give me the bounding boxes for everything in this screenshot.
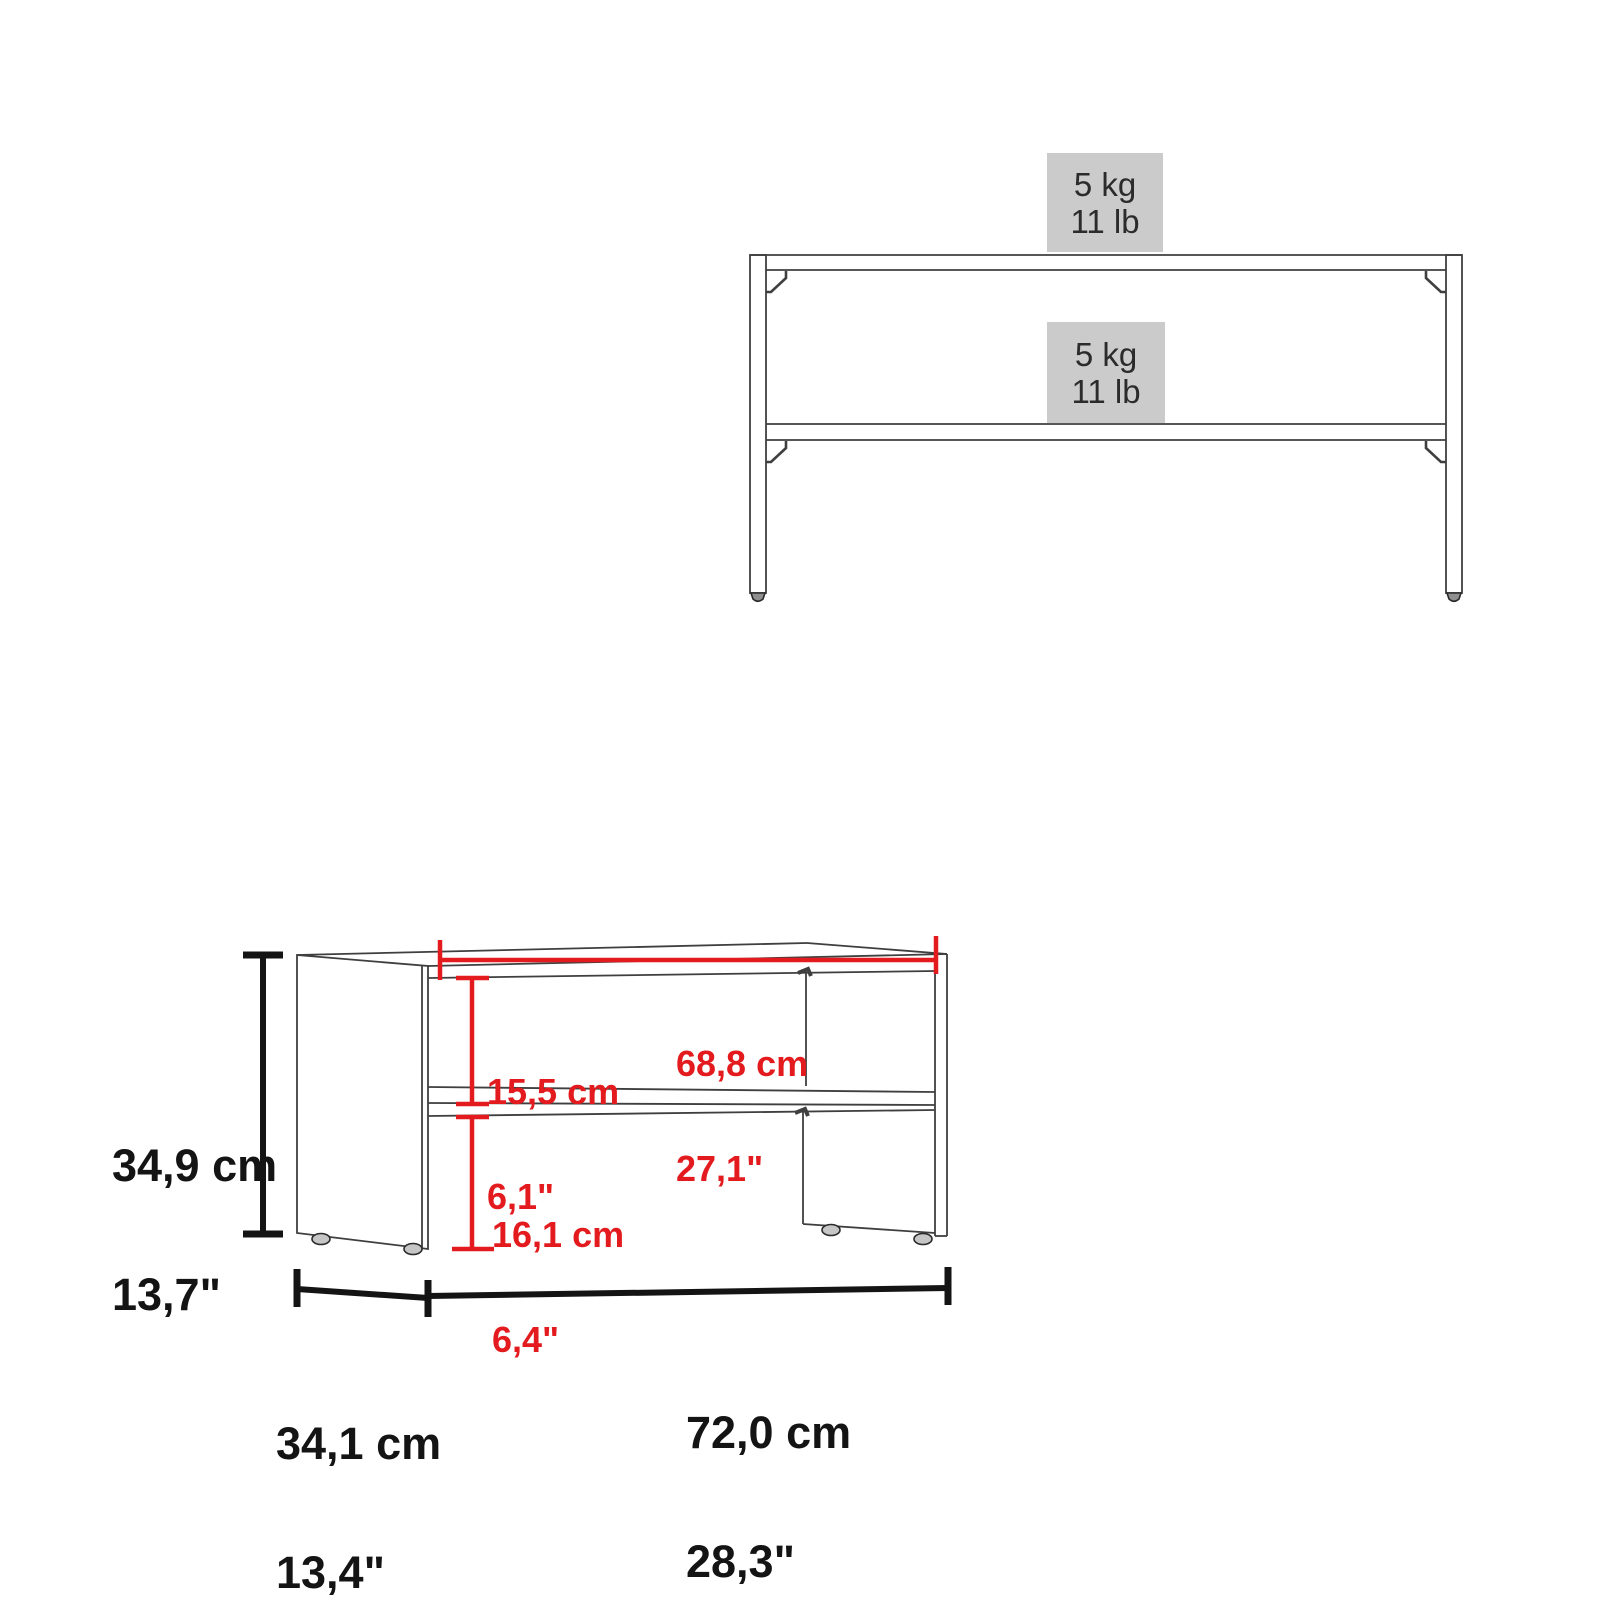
width-in: 28,3" [686,1540,851,1583]
left-panel [297,955,428,1249]
top-shelf-capacity-badge: 5 kg 11 lb [1047,153,1163,252]
top-right-edge [807,943,947,954]
depth-cm: 34,1 cm [276,1422,441,1465]
bracket-top-right [1426,271,1446,292]
middle-shelf-capacity-kg: 5 kg [1075,336,1137,373]
inner-width-in: 27,1" [676,1151,808,1186]
depth-dimension-label: 34,1 cm 13,4" [276,1336,441,1600]
upper-shelf-clip [798,969,811,976]
foot-front-left [312,1234,330,1245]
depth-in: 13,4" [276,1551,441,1594]
right-leg [1446,255,1462,593]
top-shelf-capacity-kg: 5 kg [1074,166,1136,203]
bracket-middle-right [1426,441,1446,462]
right-foot [1447,593,1461,601]
foot-front-right [914,1234,932,1245]
width-dimension-label: 72,0 cm 28,3" [686,1325,851,1600]
left-leg [750,255,766,593]
top-back-edge [297,943,807,955]
middle-shelf-capacity-badge: 5 kg 11 lb [1047,322,1165,423]
depth-dim-line [297,1289,428,1298]
height-dimension-label: 34,9 cm 13,7" [112,1058,277,1402]
middle-shelf-capacity-lb: 11 lb [1071,373,1140,410]
height-in: 13,7" [112,1273,277,1316]
inner-width-cm: 68,8 cm [676,1046,808,1081]
width-cm: 72,0 cm [686,1411,851,1454]
furniture-dimension-diagram: 5 kg 11 lb 5 kg 11 lb 34,9 cm 13,7" 34,1… [0,0,1600,1600]
bracket-top-left [766,271,786,292]
lower-space-cm: 16,1 cm [492,1217,624,1252]
top-view-frame [750,255,1462,601]
foot-back-right [822,1225,840,1236]
foot-back-left [404,1244,422,1255]
left-foot [751,593,765,601]
upper-space-cm: 15,5 cm [487,1074,619,1109]
bracket-middle-left [766,441,786,462]
lower-space-in: 6,4" [492,1322,624,1357]
lower-space-dimension-label: 16,1 cm 6,4" [492,1147,624,1427]
height-cm: 34,9 cm [112,1144,277,1187]
inner-width-dimension-label: 68,8 cm 27,1" [676,976,808,1256]
top-shelf-capacity-lb: 11 lb [1070,203,1139,240]
